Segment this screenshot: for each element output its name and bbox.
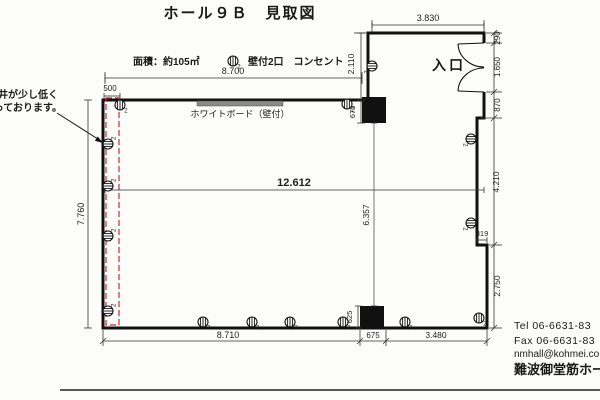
outlet-icon bbox=[115, 100, 128, 115]
whiteboard-label: ホワイトボード（壁付） bbox=[190, 108, 289, 119]
dim-total-width: 12.612 bbox=[277, 177, 311, 189]
floor-plan-page: 2 bbox=[0, 0, 600, 400]
pillar-top bbox=[362, 97, 386, 123]
outlet-icon bbox=[103, 303, 118, 316]
floor-plan-drawing: 2 bbox=[0, 0, 600, 400]
contact-fax: Fax 06-6631-83 bbox=[514, 335, 595, 347]
low-ceiling-zone bbox=[106, 98, 119, 325]
outlet-icon bbox=[103, 136, 118, 149]
dim-right-mid: 4.210 bbox=[491, 171, 501, 193]
entrance-label: 入口 bbox=[432, 57, 466, 73]
outlet-icon bbox=[462, 218, 477, 231]
dim-corridor: 2.110 bbox=[346, 53, 356, 74]
dim-right-319: 319 bbox=[476, 229, 489, 238]
dim-top-right: 3.830 bbox=[417, 13, 440, 23]
dim-bottom-mid: 675 bbox=[366, 331, 380, 340]
pillar-bottom bbox=[360, 306, 384, 328]
dim-bottom-left: 8.710 bbox=[217, 330, 240, 340]
whiteboard bbox=[197, 101, 283, 106]
note-arrow bbox=[57, 113, 103, 143]
dim-door: 1.650 bbox=[493, 56, 502, 77]
page-title: ホール９Ｂ 見取図 bbox=[163, 5, 316, 22]
dim-right-low: 2.750 bbox=[492, 275, 502, 297]
area-label: 面積：約105㎡ bbox=[133, 55, 200, 68]
contact-tel: Tel 06-6631-83 bbox=[514, 320, 591, 332]
contact-email: nmhall@kohmei.co bbox=[514, 349, 600, 360]
hall-name: 難波御堂筋ホール bbox=[514, 362, 600, 377]
dim-mid-height: 6.357 bbox=[361, 204, 371, 226]
outlet-icon bbox=[363, 61, 378, 74]
outlet-legend-label: 壁付2口 コンセント bbox=[248, 55, 344, 68]
dim-left-height: 7.760 bbox=[76, 203, 86, 226]
ceiling-note-line2: っております。 bbox=[0, 102, 62, 114]
dim-bottom-right: 3.480 bbox=[425, 330, 447, 340]
dim-strip-width: 500 bbox=[103, 84, 117, 93]
ceiling-note-line1: 天井が少し低く bbox=[0, 88, 58, 101]
outlet-icon bbox=[103, 228, 118, 241]
outlet-icon bbox=[103, 178, 118, 191]
outlet-icon bbox=[462, 134, 477, 147]
dim-right-870: 870 bbox=[493, 98, 502, 112]
dim-top-main: 8.700 bbox=[222, 66, 245, 76]
dim-right-290: 290 bbox=[493, 31, 502, 45]
outlet-icon bbox=[474, 313, 487, 328]
